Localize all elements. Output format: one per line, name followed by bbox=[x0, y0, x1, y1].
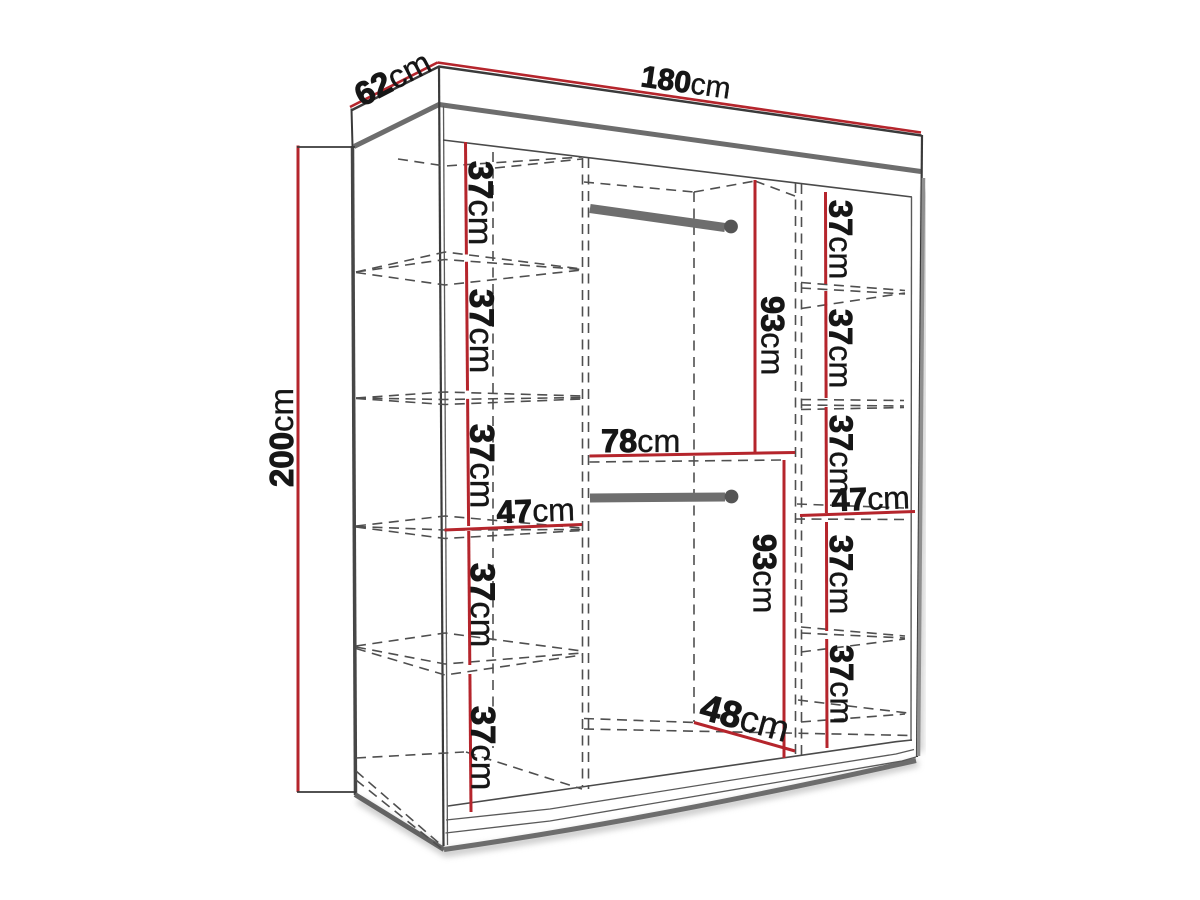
svg-text:37cm: 37cm bbox=[463, 563, 501, 647]
svg-text:200cm: 200cm bbox=[263, 388, 300, 487]
svg-text:37cm: 37cm bbox=[823, 645, 859, 724]
svg-text:37cm: 37cm bbox=[461, 161, 499, 245]
svg-text:93cm: 93cm bbox=[747, 534, 783, 613]
svg-text:37cm: 37cm bbox=[463, 424, 501, 508]
svg-text:37cm: 37cm bbox=[823, 309, 859, 388]
svg-text:37cm: 37cm bbox=[462, 289, 500, 373]
svg-text:78cm: 78cm bbox=[601, 423, 680, 459]
svg-text:37cm: 37cm bbox=[822, 200, 858, 279]
svg-text:93cm: 93cm bbox=[755, 296, 791, 375]
svg-text:37cm: 37cm bbox=[464, 706, 502, 790]
svg-text:47cm: 47cm bbox=[831, 479, 910, 518]
svg-text:47cm: 47cm bbox=[496, 491, 575, 530]
svg-text:37cm: 37cm bbox=[823, 535, 859, 614]
